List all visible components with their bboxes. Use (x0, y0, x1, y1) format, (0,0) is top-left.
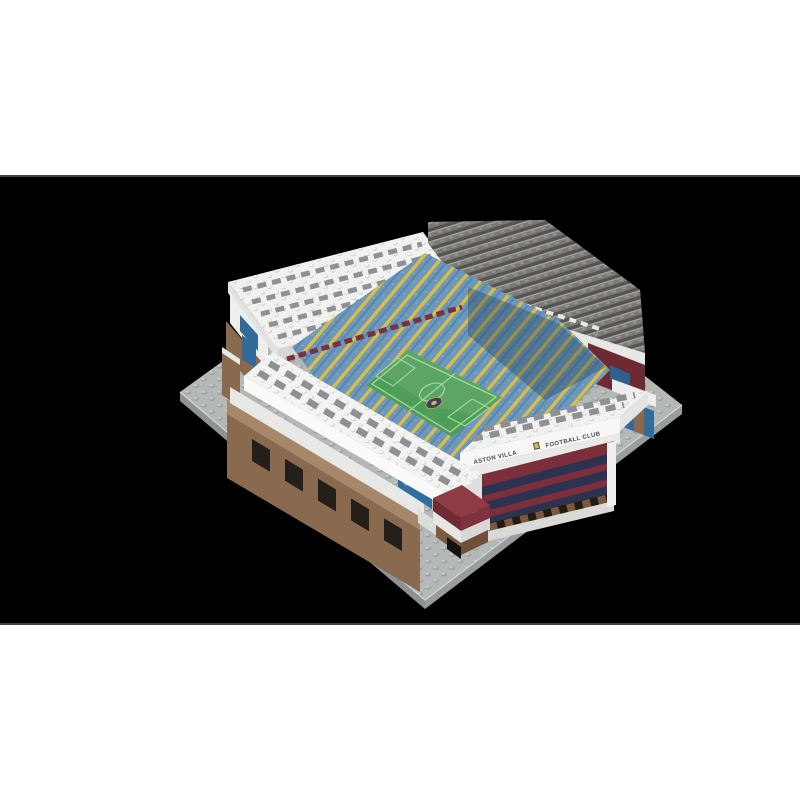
render-canvas: ASTON VILLA FOOTBALL CLUB (0, 0, 800, 800)
aston-villa-crest-icon (533, 442, 539, 449)
letterbox-white-band-bottom (0, 625, 800, 800)
letterbox-frame: ASTON VILLA FOOTBALL CLUB (0, 175, 800, 625)
letterbox-white-band-top (0, 0, 800, 175)
stadium-model: ASTON VILLA FOOTBALL CLUB (0, 177, 800, 623)
